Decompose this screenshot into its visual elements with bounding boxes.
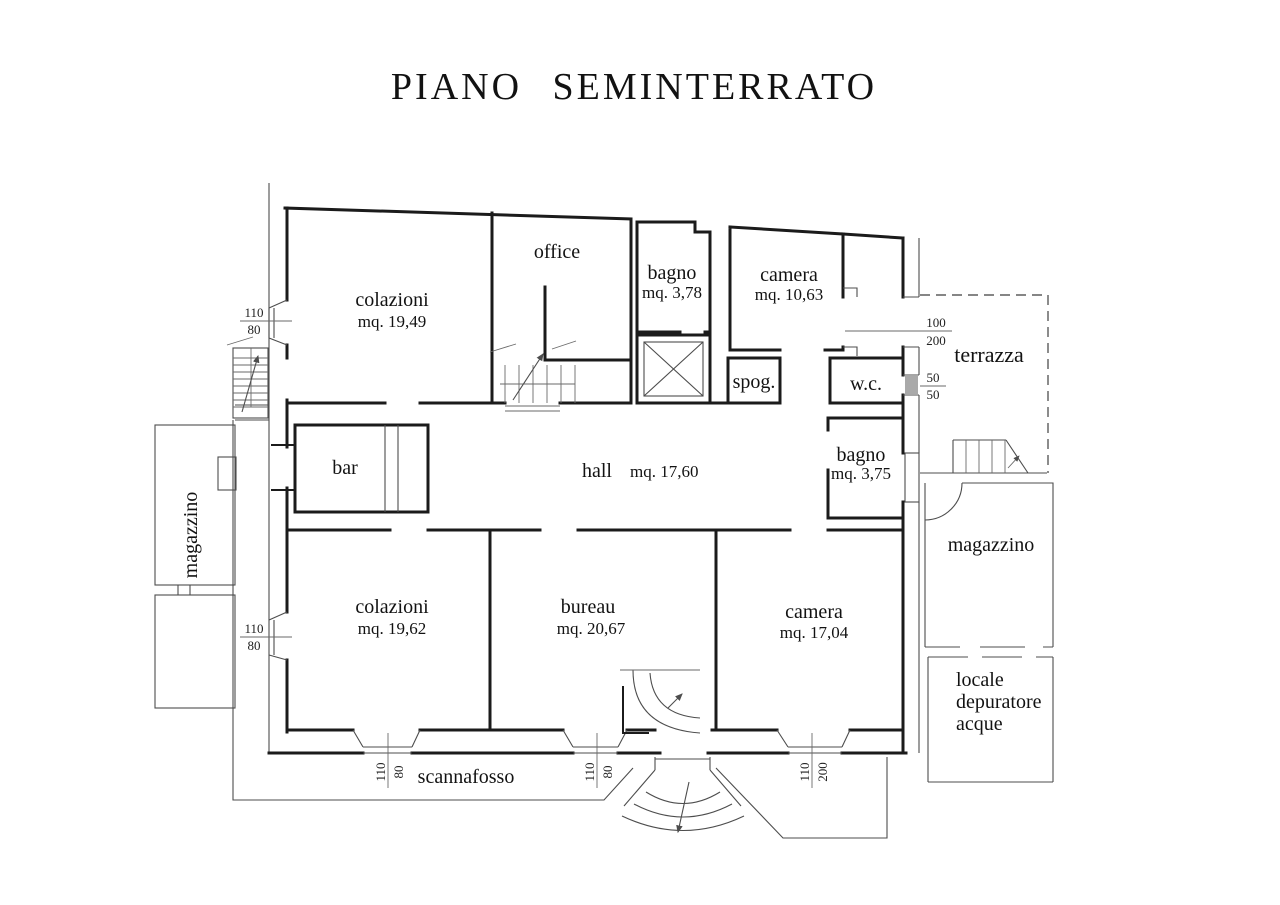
room-label-bagno2: bagno bbox=[837, 444, 886, 466]
office-stair bbox=[490, 341, 576, 411]
east-openings bbox=[903, 297, 919, 502]
right-annex bbox=[925, 483, 1053, 782]
svg-text:110: 110 bbox=[582, 762, 597, 781]
room-label-bureau: bureau bbox=[561, 596, 615, 618]
svg-text:110: 110 bbox=[373, 762, 388, 781]
plan-title: PIANO SEMINTERRATO bbox=[391, 66, 877, 108]
svg-text:200: 200 bbox=[815, 762, 830, 782]
svg-text:110: 110 bbox=[244, 621, 263, 636]
room-label-spog: spog. bbox=[733, 371, 776, 393]
dim-west-top: 110 80 bbox=[240, 305, 292, 337]
room-label-bagno1: bagno bbox=[648, 262, 697, 284]
room-label-locale-1: locale bbox=[956, 669, 1004, 691]
floorplan-page: PIANO SEMINTERRATO magazzino bbox=[0, 0, 1280, 905]
svg-text:110: 110 bbox=[244, 305, 263, 320]
svg-text:200: 200 bbox=[926, 333, 946, 348]
dim-terrace-door: 100 200 bbox=[845, 315, 952, 348]
svg-text:100: 100 bbox=[926, 315, 946, 330]
room-label-office: office bbox=[534, 241, 580, 263]
room-label-magazzino-right: magazzino bbox=[948, 534, 1035, 556]
room-area-colazioni2: mq. 19,62 bbox=[358, 619, 426, 638]
dim-wc-window: 50 50 bbox=[920, 370, 946, 402]
dim-south-win1: 110 80 bbox=[373, 757, 406, 788]
west-exterior-stair bbox=[227, 337, 268, 418]
svg-text:80: 80 bbox=[600, 766, 615, 779]
room-label-colazioni1: colazioni bbox=[355, 289, 429, 311]
room-label-locale-2: depuratore bbox=[956, 691, 1042, 713]
room-area-hall: mq. 17,60 bbox=[630, 462, 698, 481]
room-label-colazioni2: colazioni bbox=[355, 596, 429, 618]
entrance-curved-stair bbox=[622, 757, 744, 832]
svg-text:80: 80 bbox=[391, 766, 406, 779]
room-label-camera1: camera bbox=[760, 264, 818, 286]
dim-west-bottom: 110 80 bbox=[240, 621, 292, 653]
room-area-bagno2: mq. 3,75 bbox=[831, 464, 891, 483]
floorplan-drawing: PIANO SEMINTERRATO magazzino bbox=[0, 0, 1280, 905]
dim-south-win2: 110 80 bbox=[582, 757, 615, 788]
svg-text:80: 80 bbox=[248, 638, 261, 653]
label-scannafosso: scannafosso bbox=[418, 766, 515, 788]
svg-text:50: 50 bbox=[927, 387, 940, 402]
room-area-camera2: mq. 17,04 bbox=[780, 623, 849, 642]
room-label-bar: bar bbox=[332, 457, 358, 479]
room-label-magazzino-left: magazzino bbox=[180, 492, 202, 579]
room-label-camera2: camera bbox=[785, 601, 843, 623]
svg-text:110: 110 bbox=[797, 762, 812, 781]
svg-text:50: 50 bbox=[927, 370, 940, 385]
dim-south-win3: 110 200 bbox=[797, 757, 830, 788]
dimensions: 110 80 110 80 100 200 50 50 110 80 bbox=[240, 305, 952, 788]
room-area-bureau: mq. 20,67 bbox=[557, 619, 626, 638]
room-area-camera1: mq. 10,63 bbox=[755, 285, 823, 304]
room-area-bagno1: mq. 3,78 bbox=[642, 283, 702, 302]
left-annex: magazzino bbox=[155, 425, 236, 708]
room-label-locale-3: acque bbox=[956, 713, 1003, 735]
room-label-terrazza: terrazza bbox=[954, 342, 1024, 367]
elevator-shaft bbox=[637, 335, 710, 403]
entrance-inner-steps bbox=[620, 670, 700, 733]
room-area-colazioni1: mq. 19,49 bbox=[358, 312, 426, 331]
room-label-hall: hall bbox=[582, 460, 612, 482]
svg-text:80: 80 bbox=[248, 322, 261, 337]
room-label-wc: w.c. bbox=[850, 373, 882, 395]
